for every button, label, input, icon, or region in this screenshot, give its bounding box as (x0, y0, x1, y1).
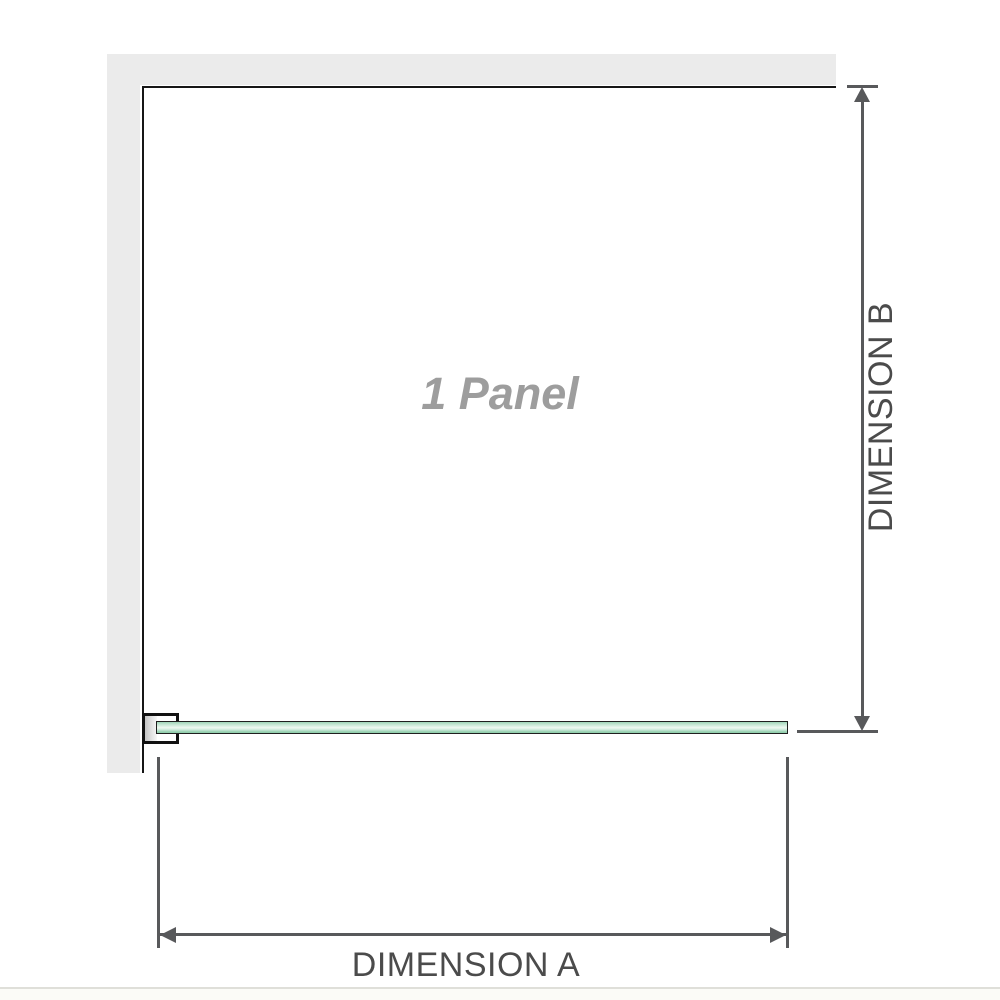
wall-top (107, 54, 836, 85)
dimension-a-label: DIMENSION A (341, 946, 591, 985)
dim-b-arrow-down-icon (854, 716, 870, 731)
dim-a-line (160, 933, 786, 936)
glass-panel (156, 721, 788, 734)
dim-a-arrow-right-icon (770, 927, 786, 943)
panel-dimension-diagram: DIMENSION B DIMENSION A 1 Panel (0, 0, 1000, 1000)
dim-a-extension-right (786, 757, 789, 948)
wall-left (107, 54, 140, 773)
enclosure-edge-top (142, 86, 836, 88)
dimension-b-label: DIMENSION B (863, 292, 899, 542)
panel-count-label: 1 Panel (350, 368, 650, 420)
enclosure-edge-left (142, 86, 144, 773)
dim-b-arrow-up-icon (854, 87, 870, 102)
bottom-strip (0, 989, 1000, 1000)
dim-a-arrow-left-icon (160, 927, 176, 943)
dim-a-extension-left (157, 757, 160, 948)
